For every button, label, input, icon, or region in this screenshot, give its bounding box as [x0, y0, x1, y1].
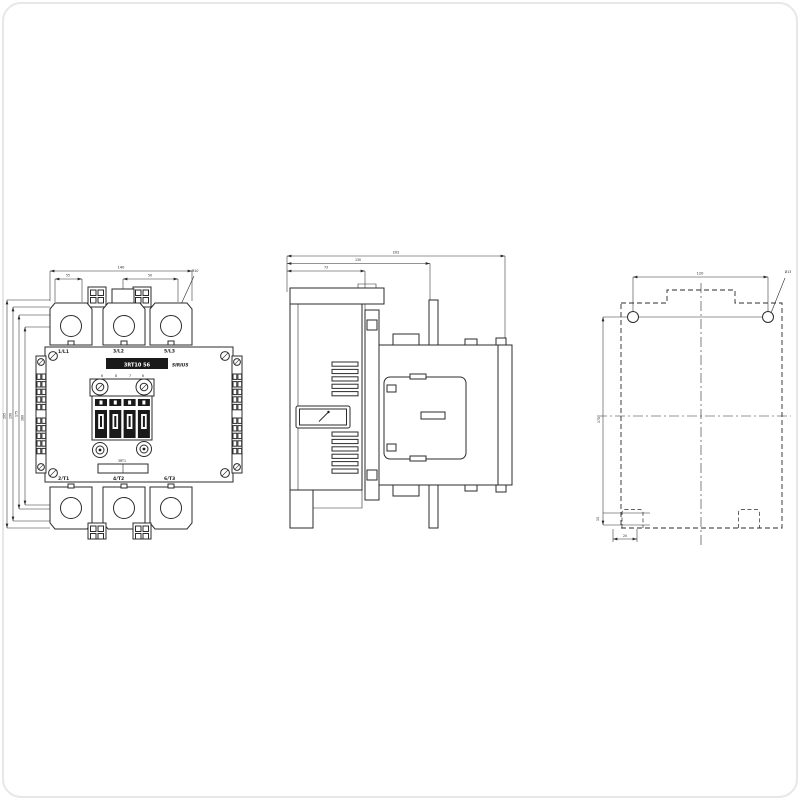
dim-notch-width: 20: [623, 534, 627, 538]
terminal-label-6T3: 6/T3: [164, 476, 175, 482]
svg-text:8: 8: [115, 374, 117, 378]
bottom-block-tab: [393, 485, 419, 496]
vent-slat: [332, 439, 358, 443]
clamp-cap-slot: [114, 401, 117, 405]
terminal-hole-L3: [161, 316, 182, 337]
terminal-label-2T1: 2/T1: [58, 476, 69, 482]
clamp-cap-slot: [128, 401, 131, 405]
top-terminal-lugs: [50, 303, 192, 345]
terminal-hole-T1: [61, 498, 82, 519]
indicator-window: [296, 406, 350, 428]
side-top-cap: [290, 288, 384, 304]
clamp-cap-slot: [100, 401, 103, 405]
svg-text:6: 6: [142, 374, 144, 378]
dim-width-left: 55: [66, 274, 70, 278]
side-inner-panel: [384, 374, 466, 461]
dim-hole-dia: Ø13: [785, 269, 792, 274]
type-label-text: 3RT10 56: [124, 362, 151, 368]
vent-slat: [332, 454, 358, 458]
mounting-notch-right: [739, 510, 760, 529]
clamp-pin: [114, 416, 116, 427]
clamp-pin: [100, 416, 102, 427]
clamp-pin: [143, 416, 145, 427]
dim-depth-min: 73: [324, 266, 328, 270]
vent-slat: [332, 369, 358, 373]
dim-depth-front: 130: [355, 258, 361, 262]
terminal-label-1L1: 1/L1: [58, 349, 69, 355]
product-dimension-drawing: 205 190 175 160 140 55 50 M10: [0, 0, 800, 800]
coil-type-text: 3RT1: [118, 459, 126, 463]
dim-width-right: 50: [148, 274, 152, 278]
dim-width-total: 140: [118, 266, 126, 270]
terminal-label-3L2: 3/L2: [113, 349, 124, 355]
top-block-tab: [393, 334, 419, 345]
vent-slat: [332, 362, 358, 366]
dim-height-outer: 175: [15, 411, 19, 417]
rear-dimensions: 120 Ø13 170 15 20: [596, 269, 791, 542]
clamp-pin: [129, 416, 131, 427]
hole-leader-label: M10: [192, 269, 199, 273]
mounting-hole-right: [763, 312, 774, 323]
side-foot: [290, 490, 313, 528]
vent-slat: [332, 432, 358, 436]
terminal-hole-T3: [161, 498, 182, 519]
panel-slot: [421, 412, 445, 419]
side-view: 202 130 73: [287, 251, 512, 529]
vent-slat: [332, 392, 358, 396]
terminal-hole-L1: [61, 316, 82, 337]
dim-hole-spacing: 120: [697, 272, 705, 276]
brand-label: SIRIUS: [172, 363, 189, 369]
dim-mount-height: 170: [597, 417, 601, 423]
terminal-label-4T2: 4/T2: [113, 476, 124, 482]
vent-slat: [332, 469, 358, 473]
svg-text:7: 7: [129, 374, 131, 378]
vent-slat: [332, 447, 358, 451]
vent-slat: [332, 377, 358, 381]
bottom-terminal-shank: [429, 485, 438, 528]
top-terminal-shank: [429, 300, 438, 345]
contactor-dimensional-drawing: 205 190 175 160 140 55 50 M10: [0, 0, 800, 800]
rear-plate: [498, 345, 512, 485]
terminal-hole-L2: [114, 316, 135, 337]
vent-slat: [332, 384, 358, 388]
vent-slat: [332, 462, 358, 466]
mounting-drilling-view: 120 Ø13 170 15 20: [596, 269, 791, 545]
dim-hole-pitch: 160: [21, 415, 25, 421]
dim-height-total: 205: [3, 413, 7, 419]
bottom-terminal-lugs: [50, 484, 192, 529]
dim-depth-total: 202: [393, 251, 400, 255]
terminal-hole-T2: [114, 498, 135, 519]
top-center-tab: [112, 289, 134, 304]
dim-notch-offset: 15: [596, 517, 600, 521]
device-footprint-outline: [621, 290, 782, 528]
front-view: 205 190 175 160 140 55 50 M10: [3, 266, 243, 540]
svg-text:6: 6: [101, 374, 103, 378]
hole-dia-leader: [771, 278, 785, 313]
terminal-label-5L3: 5/L3: [164, 349, 175, 355]
dim-height-housing: 190: [9, 413, 13, 419]
mounting-hole-left: [628, 312, 639, 323]
clamp-cap-slot: [142, 401, 145, 405]
